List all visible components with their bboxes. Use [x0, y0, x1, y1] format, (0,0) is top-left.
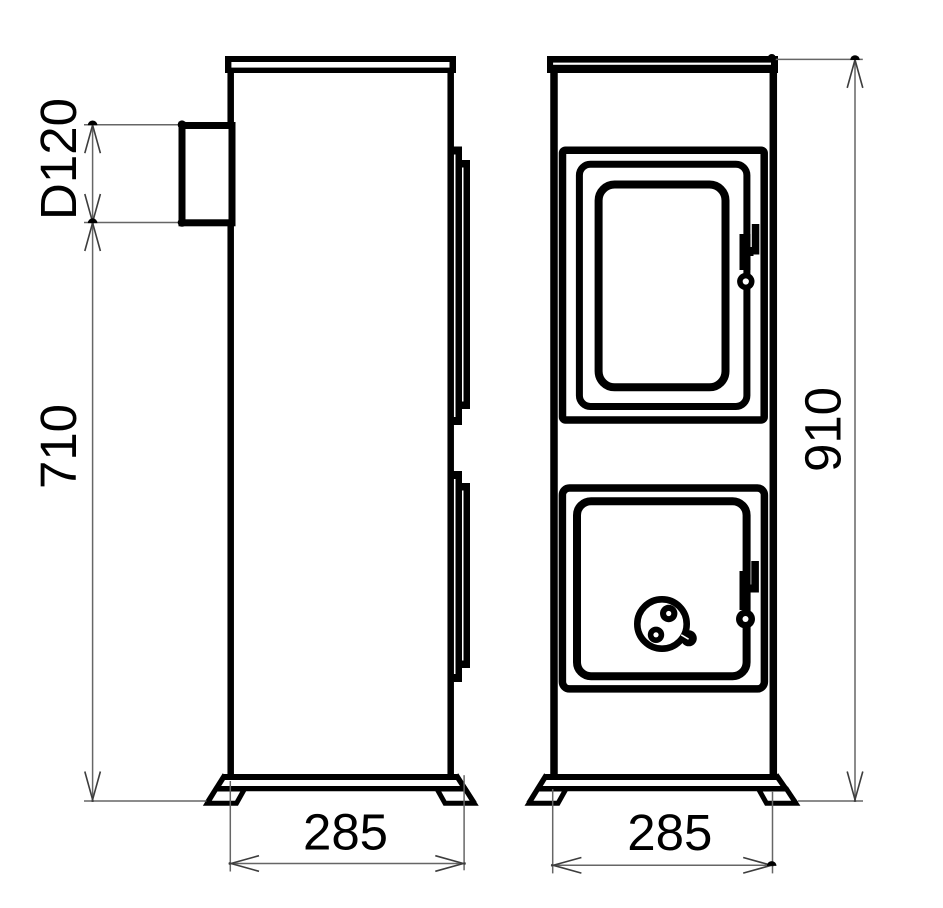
svg-text:910: 910 [794, 387, 851, 472]
svg-text:285: 285 [303, 804, 388, 861]
svg-text:285: 285 [627, 804, 712, 861]
svg-text:D120: D120 [30, 98, 87, 220]
svg-text:710: 710 [30, 404, 87, 489]
